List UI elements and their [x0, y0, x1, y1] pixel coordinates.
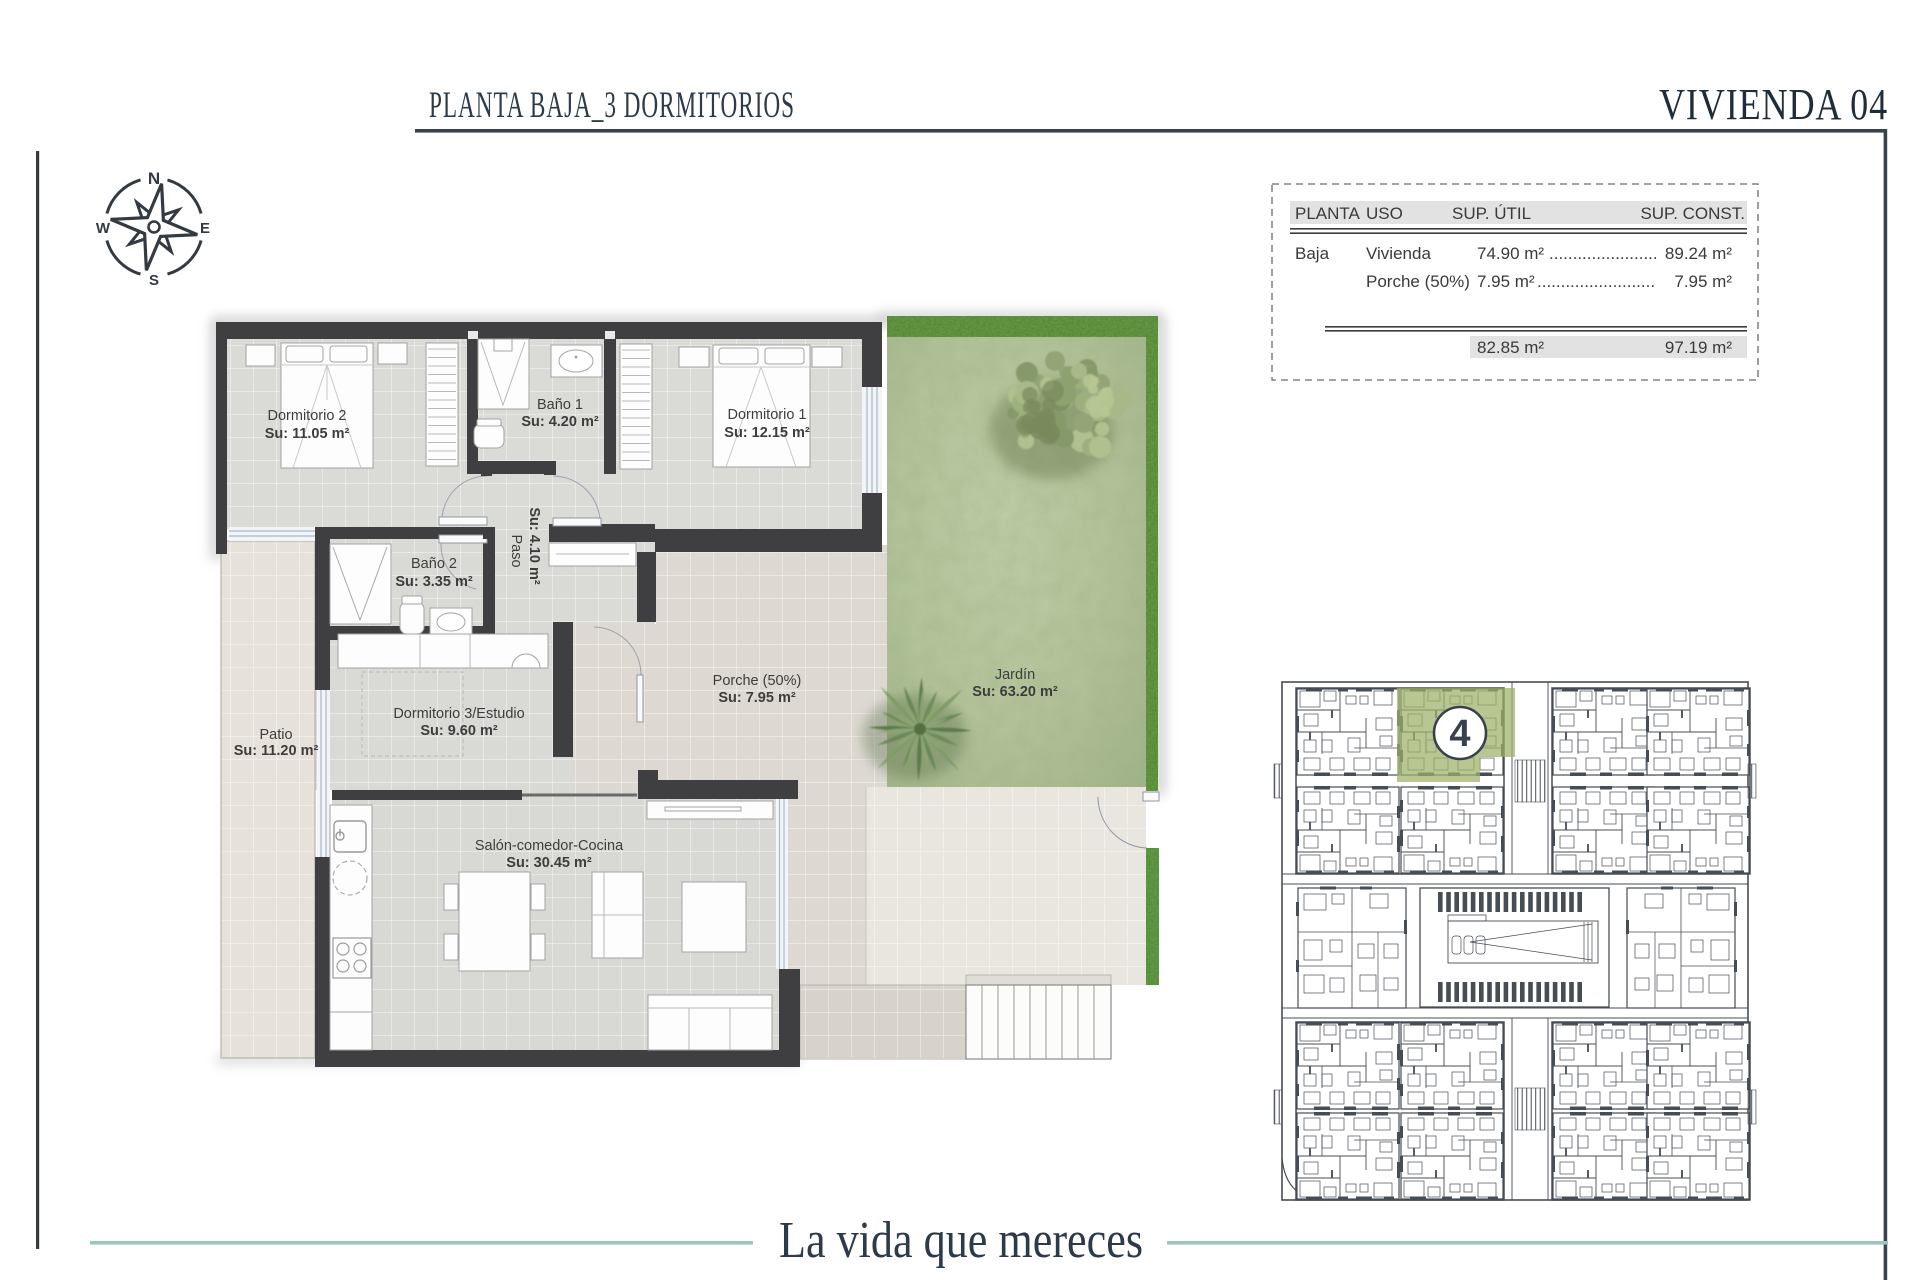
svg-text:Baño 1: Baño 1 [537, 397, 583, 413]
svg-text:82.85 m²: 82.85 m² [1477, 338, 1544, 357]
svg-text:SUP. ÚTIL: SUP. ÚTIL [1452, 204, 1531, 223]
svg-text:Dormitorio 1: Dormitorio 1 [728, 407, 807, 423]
svg-text:La vida que mereces: La vida que mereces [779, 1212, 1143, 1269]
svg-text:Su: 11.05 m²: Su: 11.05 m² [265, 426, 350, 442]
svg-text:Baja: Baja [1295, 244, 1330, 263]
svg-text:Dormitorio 3/Estudio: Dormitorio 3/Estudio [393, 706, 524, 722]
svg-text:Su: 7.95 m²: Su: 7.95 m² [718, 690, 796, 706]
svg-text:.......................: ....................... [1549, 244, 1658, 263]
svg-text:7.95 m²: 7.95 m² [1477, 272, 1535, 291]
svg-text:Su: 4.10 m²: Su: 4.10 m² [526, 507, 542, 585]
svg-text:Su: 63.20 m²: Su: 63.20 m² [972, 684, 1058, 700]
svg-text:Vivienda: Vivienda [1366, 244, 1431, 263]
svg-text:4: 4 [1449, 713, 1470, 755]
svg-text:.........................: ......................... [1537, 272, 1655, 291]
svg-text:Salón-comedor-Cocina: Salón-comedor-Cocina [475, 838, 624, 854]
svg-text:VIVIENDA 04: VIVIENDA 04 [1659, 80, 1888, 129]
svg-text:Su: 12.15 m²: Su: 12.15 m² [724, 425, 810, 441]
svg-text:Su: 11.20 m²: Su: 11.20 m² [234, 743, 319, 759]
svg-text:Paso: Paso [508, 534, 524, 567]
svg-text:Patio: Patio [259, 727, 292, 743]
svg-text:W: W [96, 220, 111, 237]
svg-text:Su: 9.60 m²: Su: 9.60 m² [420, 723, 498, 739]
svg-text:97.19 m²: 97.19 m² [1665, 338, 1732, 357]
svg-text:PLANTA BAJA_3 DORMITORIOS: PLANTA BAJA_3 DORMITORIOS [429, 85, 795, 126]
svg-text:PLANTA: PLANTA [1295, 204, 1361, 223]
svg-text:Jardín: Jardín [995, 667, 1035, 683]
svg-text:Baño 2: Baño 2 [411, 556, 457, 572]
svg-text:Porche (50%): Porche (50%) [713, 673, 802, 689]
svg-text:Su: 4.20 m²: Su: 4.20 m² [521, 414, 599, 430]
svg-text:89.24 m²: 89.24 m² [1665, 244, 1732, 263]
svg-text:N: N [148, 169, 160, 188]
svg-text:USO: USO [1366, 204, 1403, 223]
svg-text:E: E [200, 220, 210, 237]
svg-text:Dormitorio 2: Dormitorio 2 [268, 408, 347, 424]
svg-text:Su: 3.35 m²: Su: 3.35 m² [395, 574, 473, 590]
svg-text:7.95 m²: 7.95 m² [1674, 272, 1732, 291]
svg-text:SUP. CONST.: SUP. CONST. [1640, 204, 1745, 223]
svg-text:Porche (50%): Porche (50%) [1366, 272, 1470, 291]
svg-text:Su: 30.45 m²: Su: 30.45 m² [506, 855, 592, 871]
svg-text:S: S [149, 272, 159, 289]
svg-text:74.90 m²: 74.90 m² [1477, 244, 1544, 263]
